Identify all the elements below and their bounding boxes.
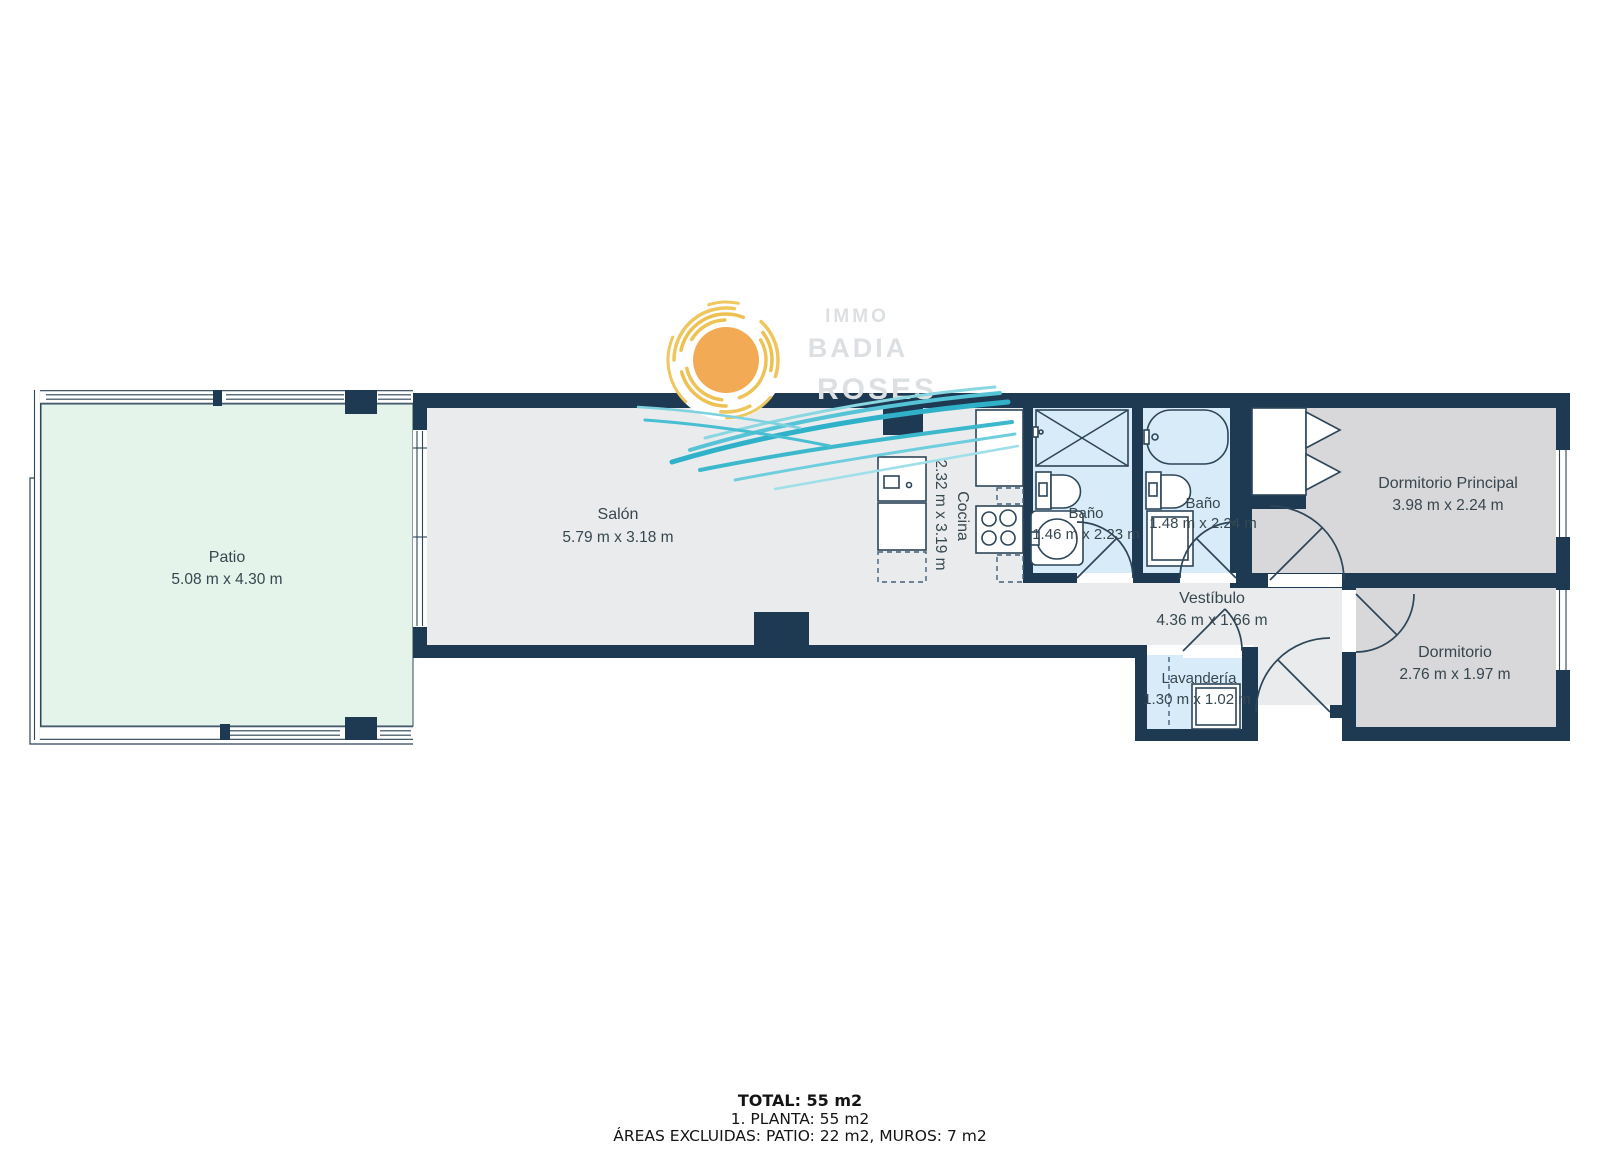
kitchen-counter: [976, 410, 1023, 486]
toilet-icon: [1036, 472, 1081, 509]
threshold-entrance: [1258, 705, 1330, 718]
threshold-bano2: [1180, 573, 1236, 583]
room-label-patio: Patio: [209, 549, 246, 566]
threshold-lavanderia: [1183, 645, 1242, 658]
threshold-bano1: [1077, 573, 1133, 583]
room-dims-cocina: 2.32 m x 3.19 m: [932, 459, 949, 570]
pillar: [754, 612, 809, 645]
summary: TOTAL: 55 m2 1. PLANTA: 55 m2 ÁREAS EXCL…: [613, 1091, 986, 1145]
room-label-bano1: Baño: [1068, 505, 1103, 522]
floorplan-page: Patio 5.08 m x 4.30 m Salón 5.79 m x 3.1…: [0, 0, 1600, 1158]
room-dims-patio: 5.08 m x 4.30 m: [171, 571, 282, 588]
window-dormitorio: [1556, 590, 1570, 670]
pillar: [345, 390, 377, 414]
room-dims-dormitorio-principal: 3.98 m x 2.24 m: [1392, 497, 1503, 514]
watermark-line2: BADIA: [808, 333, 909, 363]
threshold-dormitorio: [1342, 590, 1356, 652]
room-label-bano2: Baño: [1185, 495, 1220, 512]
floorplan-svg: Patio 5.08 m x 4.30 m Salón 5.79 m x 3.1…: [0, 0, 1600, 1158]
room-dims-bano2: 1.48 m x 2.24 m: [1149, 515, 1257, 532]
summary-excluded: ÁREAS EXCLUIDAS: PATIO: 22 m2, MUROS: 7 …: [613, 1126, 986, 1145]
room-dims-dormitorio: 2.76 m x 1.97 m: [1399, 666, 1510, 683]
summary-total: TOTAL: 55 m2: [738, 1091, 862, 1110]
room-dims-bano1: 1.46 m x 2.23 m: [1032, 526, 1140, 543]
pillar: [213, 390, 222, 406]
summary-floor: 1. PLANTA: 55 m2: [731, 1110, 870, 1128]
room-dims-vestibulo: 4.36 m x 1.66 m: [1156, 612, 1267, 629]
room-dims-salon: 5.79 m x 3.18 m: [562, 529, 673, 546]
pillar: [220, 724, 230, 740]
threshold-dormitorio-principal: [1268, 574, 1342, 587]
window-dormitorio-principal: [1556, 450, 1570, 537]
watermark: IMMO BADIA ROSES: [808, 306, 937, 406]
room-label-dormitorio-principal: Dormitorio Principal: [1378, 475, 1518, 492]
kitchen-counter: [878, 503, 926, 550]
room-dims-lavanderia: 1.30 m x 1.02 m: [1143, 691, 1251, 708]
stove-icon: [976, 506, 1023, 553]
room-label-cocina: Cocina: [954, 491, 971, 541]
toilet-icon: [1146, 472, 1191, 509]
entry-floor: [1253, 645, 1342, 708]
sliding-door-window: [413, 430, 427, 627]
closet-box: [1252, 408, 1306, 495]
room-label-vestibulo: Vestíbulo: [1179, 590, 1245, 607]
pillar: [345, 717, 377, 740]
room-label-salon: Salón: [598, 506, 639, 523]
watermark-line1: IMMO: [825, 306, 889, 327]
room-label-lavanderia: Lavandería: [1161, 670, 1237, 687]
room-label-dormitorio: Dormitorio: [1418, 644, 1492, 661]
